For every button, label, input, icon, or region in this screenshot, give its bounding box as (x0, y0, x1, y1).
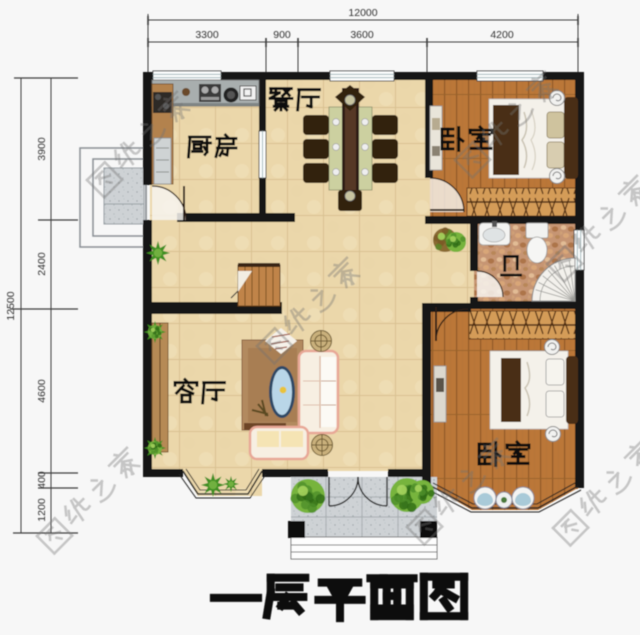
svg-text:4200: 4200 (490, 29, 514, 41)
svg-text:400: 400 (36, 471, 48, 489)
svg-text:1200: 1200 (36, 498, 48, 522)
svg-text:12500: 12500 (5, 291, 17, 320)
svg-text:3900: 3900 (36, 137, 48, 161)
svg-text:3300: 3300 (195, 29, 219, 41)
svg-text:3600: 3600 (350, 29, 374, 41)
svg-text:12000: 12000 (348, 7, 377, 19)
svg-text:2400: 2400 (36, 252, 48, 276)
svg-text:4600: 4600 (36, 379, 48, 403)
svg-text:900: 900 (273, 29, 291, 41)
